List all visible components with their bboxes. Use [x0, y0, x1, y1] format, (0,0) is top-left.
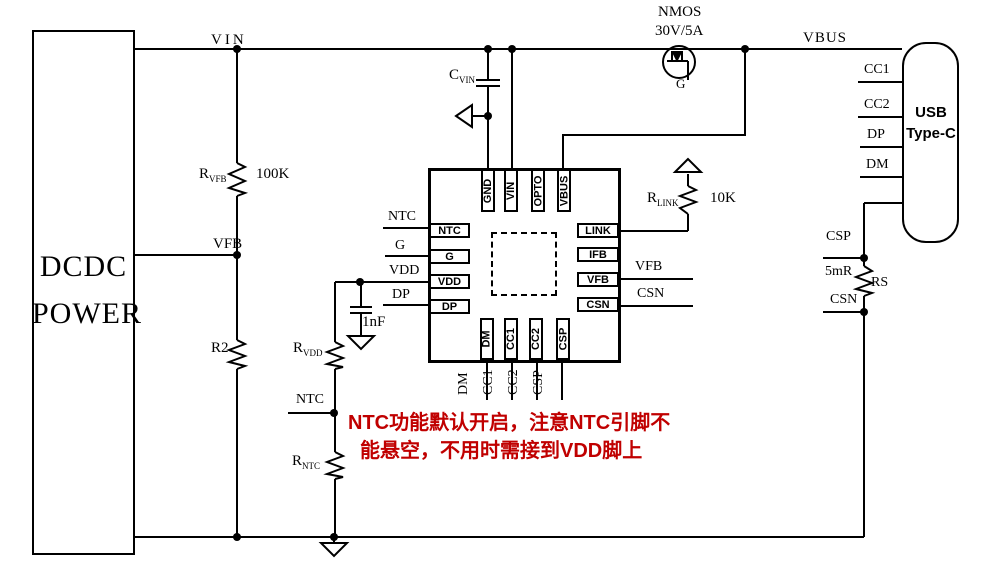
net-label-ntc-bottom: NTC	[296, 393, 324, 408]
resistor-r2	[229, 340, 245, 369]
net-label-csp-bottom: CSP	[531, 370, 547, 395]
ic-pin-g: G	[429, 249, 470, 264]
net-label-ntc: NTC	[388, 210, 416, 225]
rvfb-value-label: 100K	[256, 167, 289, 183]
rvdd-ref-label: RVDD	[293, 341, 323, 358]
net-label-vbus: VBUS	[803, 31, 847, 47]
net-label-vfb: VFB	[213, 237, 242, 253]
rlink-value-label: 10K	[710, 191, 736, 207]
ntc-annotation-line2: 能悬空，不用时需接到VDD脚上	[360, 434, 642, 463]
nmos-type-label: NMOS	[658, 5, 701, 21]
nmos-gate-label: G	[676, 77, 685, 91]
vdd-ntc-chain-wires	[288, 282, 335, 537]
ic-pin-ntc: NTC	[429, 223, 470, 238]
ic-pin-vbus: VBUS	[557, 169, 571, 212]
usb-label-line2: Type-C	[903, 123, 959, 144]
ic-thermal-pad	[491, 232, 557, 296]
ic-pin-dp: DP	[429, 299, 470, 314]
net-label-csp: CSP	[826, 230, 851, 245]
resistor-rntc	[327, 452, 343, 479]
net-label-vin: VIN	[211, 33, 247, 49]
bottom-pin-stubs	[487, 363, 562, 400]
net-label-csn: CSN	[830, 293, 857, 308]
ic-pin-vfb: VFB	[577, 272, 619, 287]
cvdd-value-label: 1nF	[362, 315, 385, 331]
rs-value-label: 5mR	[825, 265, 852, 280]
supply-arrow-up	[675, 159, 701, 172]
net-label-csn-out: CSN	[637, 287, 664, 302]
ic-pin-csn: CSN	[577, 297, 619, 312]
rntc-ref-label: RNTC	[292, 454, 320, 471]
ic-pin-link: LINK	[577, 223, 619, 238]
resistor-rvfb	[229, 163, 245, 196]
net-label-vfb-out: VFB	[635, 260, 662, 275]
net-label-usb-dm: DM	[866, 158, 889, 173]
ntc-annotation-line1: NTC功能默认开启，注意NTC引脚不	[348, 406, 670, 435]
ic-pin-vdd: VDD	[429, 274, 470, 289]
rlink-ref-label: RLINK	[647, 191, 679, 208]
ground-symbol-cvdd	[348, 336, 374, 349]
ic-pin-gnd: GND	[481, 169, 495, 212]
rvfb-ref-label: RVFB	[199, 167, 227, 184]
resistor-rs	[856, 266, 872, 296]
schematic-canvas: DCDC POWER USB Type-C GND VIN OPTO VBUS …	[0, 0, 1001, 565]
net-label-usb-cc1: CC1	[864, 63, 890, 78]
ic-pin-csp: CSP	[556, 318, 570, 360]
net-label-cc1-bottom: CC1	[481, 369, 497, 395]
gnd-arrow-left	[456, 105, 472, 127]
resistor-rlink	[680, 186, 696, 214]
nmos-symbol	[663, 46, 695, 80]
net-label-dp: DP	[392, 288, 410, 303]
rs-ref-label: RS	[871, 276, 888, 291]
capacitor-cvin	[476, 80, 500, 86]
resistor-rvdd	[327, 342, 343, 369]
vbus-pin-wire	[563, 49, 745, 168]
net-label-cc2-bottom: CC2	[506, 369, 522, 395]
dcdc-label-line1: DCDC	[32, 250, 135, 284]
capacitor-cvdd	[350, 307, 372, 313]
net-label-vdd: VDD	[389, 264, 419, 279]
dcdc-label-line2: POWER	[32, 297, 135, 331]
ic-pin-vin: VIN	[504, 169, 518, 212]
ground-symbol-rail	[321, 543, 347, 556]
net-label-usb-cc2: CC2	[864, 98, 890, 113]
usb-connector-label: USB Type-C	[903, 102, 959, 144]
r2-ref-label: R2	[211, 341, 229, 357]
nmos-rating-label: 30V/5A	[655, 24, 703, 40]
ic-pin-opto: OPTO	[531, 169, 545, 212]
net-label-usb-dp: DP	[867, 128, 885, 143]
sense-chain-wires	[823, 203, 864, 537]
ic-pin-cc1: CC1	[504, 318, 518, 360]
dcdc-power-block	[32, 30, 135, 555]
cvin-ref-label: CVIN	[449, 68, 475, 85]
net-label-g: G	[395, 239, 405, 254]
ic-pin-ifb: IFB	[577, 247, 619, 262]
usb-label-line1: USB	[903, 102, 959, 123]
ic-pin-cc2: CC2	[529, 318, 543, 360]
net-label-dm-bottom: DM	[456, 372, 472, 395]
cvin-branch-wires	[472, 49, 488, 168]
ic-pin-dm: DM	[480, 318, 494, 360]
